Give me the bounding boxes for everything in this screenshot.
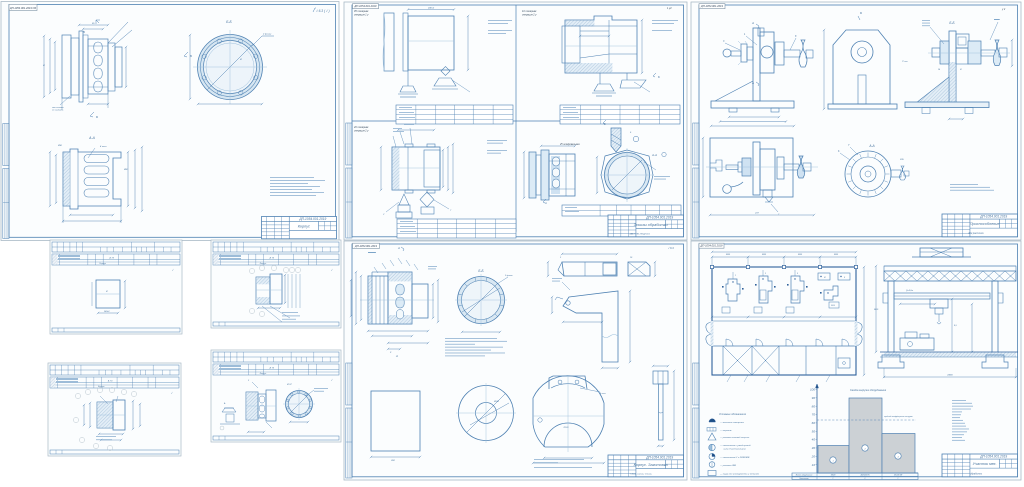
svg-text:Q=3,2т: Q=3,2т (906, 290, 914, 292)
svg-text:24: 24 (937, 68, 940, 71)
svg-text:Ø 97: Ø 97 (286, 384, 293, 386)
svg-text:1: 1 (735, 275, 736, 277)
svg-text:Б: Б (190, 54, 192, 58)
svg-text:2 фаски: 2 фаски (504, 274, 513, 277)
svg-text:05-15: 05-15 (831, 305, 835, 307)
svg-text:Б-Б: Б-Б (226, 20, 232, 24)
svg-text:Количество: Количество (799, 478, 808, 480)
svg-text:ДП-1054.001.2019: ДП-1054.001.2019 (700, 244, 723, 248)
svg-text:Сводка загрузки оборудования: Сводка загрузки оборудования (850, 389, 887, 392)
svg-text:А 73: А 73 (269, 367, 275, 370)
svg-text:10: 10 (812, 463, 816, 467)
svg-text:ДП-1054.001.2019: ДП-1054.001.2019 (700, 4, 723, 8)
svg-text:ДП-1054.001.2019 СБ: ДП-1054.001.2019 СБ (9, 6, 36, 10)
svg-text:100: 100 (810, 388, 815, 392)
svg-text:силы 9 светильников: силы 9 светильников (724, 448, 747, 450)
svg-text:2: 2 (764, 273, 766, 275)
svg-text:Корпус. Заготовка: Корпус. Заготовка (634, 463, 668, 467)
svg-text:А 73: А 73 (107, 380, 113, 383)
svg-text:Ø: Ø (105, 291, 108, 293)
svg-text:240±2: 240±2 (427, 7, 435, 10)
svg-text:не считать: не считать (52, 110, 63, 112)
svg-text:Б-Б: Б-Б (478, 269, 483, 273)
svg-text:1 у2: 1 у2 (667, 7, 672, 10)
svg-text:средний коэффициент загрузки: средний коэффициент загрузки (884, 415, 914, 418)
svg-text:60: 60 (812, 421, 816, 425)
svg-text:25 шлифовальная: 25 шлифовальная (559, 143, 580, 146)
svg-text:— светильник с узкой кривой: — светильник с узкой кривой (719, 444, 751, 447)
svg-text:А: А (751, 21, 754, 25)
svg-text:у 2: у 2 (1001, 8, 1006, 11)
svg-text:80: 80 (812, 404, 816, 408)
svg-text:ДП-1054.001.2019: ДП-1054.001.2019 (645, 455, 673, 459)
svg-text:Корпус: Корпус (100, 263, 107, 265)
svg-text:А-А: А-А (88, 136, 95, 140)
svg-text:операция 2 у: операция 2 у (522, 13, 537, 16)
svg-text:30: 30 (812, 446, 816, 450)
svg-text:— верстак: — верстак (719, 430, 732, 432)
svg-text:Эскизы обработки: Эскизы обработки (634, 223, 669, 227)
svg-text:— розетка силовой энергии: — розетка силовой энергии (719, 436, 750, 439)
svg-text:260: 260 (390, 460, 395, 462)
svg-text:2: 2 (864, 478, 866, 480)
svg-text:А: А (397, 246, 400, 250)
svg-text:Условные обозначения: Условные обозначения (719, 413, 747, 416)
svg-text:2А150/2Г25: 2А150/2Г25 (859, 474, 869, 477)
svg-text:20: 20 (811, 454, 816, 458)
svg-text:для расточки: для расточки (968, 232, 984, 235)
svg-text:— светильник U = 220В/36В: — светильник U = 220В/36В (719, 457, 750, 459)
svg-text:24000: 24000 (946, 374, 953, 377)
svg-text:А-А: А-А (868, 144, 874, 148)
svg-text:237: 237 (754, 213, 759, 215)
svg-text:Корпус: Корпус (260, 263, 267, 265)
svg-text:Корпус: Корпус (260, 373, 267, 375)
svg-text:4 отв: 4 отв (600, 392, 606, 395)
svg-text:Б-Б: Б-Б (949, 21, 954, 25)
svg-text:17 мас: 17 мас (902, 61, 908, 63)
svg-text:операция 1 у: операция 1 у (354, 13, 369, 16)
svg-text:А-А: А-А (651, 153, 657, 157)
svg-text:ДП-1054.001.2019: ДП-1054.001.2019 (979, 215, 1007, 219)
svg-text:обработки: обработки (970, 474, 983, 476)
svg-text:Б: Б (96, 115, 98, 119)
svg-text:3К 225 ВМ: 3К 225 ВМ (894, 475, 903, 477)
svg-text:40: 40 (812, 438, 816, 442)
svg-text:50: 50 (812, 429, 816, 433)
svg-text:ДМ-7.ПВ.ТМ.ДП-19.: ДМ-7.ПВ.ТМ.ДП-19. (629, 234, 651, 236)
svg-text:Приспособление: Приспособление (970, 222, 1000, 226)
svg-text:А 73: А 73 (269, 257, 275, 260)
svg-text:16К20: 16К20 (831, 475, 836, 477)
svg-text:Стац, заточ, Сталь: Стац, заточ, Сталь (630, 474, 652, 476)
svg-text:ДП-1054.001.2019: ДП-1054.001.2019 (298, 217, 326, 221)
svg-text:— розетка 36В: — розетка 36В (719, 465, 737, 467)
svg-text:90: 90 (812, 396, 816, 400)
svg-text:Ø: Ø (239, 59, 242, 61)
svg-text:Б: Б (860, 11, 862, 15)
svg-text:Ø240: Ø240 (493, 400, 500, 403)
svg-text:√ 6.3: √ 6.3 (668, 246, 674, 250)
svg-text:ДП-1054.001.2019: ДП-1054.001.2019 (645, 215, 673, 219)
svg-text:Б: Б (83, 30, 85, 34)
svg-text:операция 2 у: операция 2 у (354, 129, 369, 132)
svg-text:1: 1 (898, 478, 899, 480)
svg-text:1: 1 (832, 460, 833, 462)
svg-text:1: 1 (833, 478, 834, 480)
svg-text:ДП-1054.001.2019: ДП-1054.001.2019 (354, 244, 377, 248)
svg-text:3: 3 (797, 273, 798, 275)
svg-text:√ 6.3 ( √ ): √ 6.3 ( √ ) (316, 9, 330, 13)
svg-text:ДП-1054.001.2019: ДП-1054.001.2019 (979, 455, 1007, 459)
svg-text:240±2: 240±2 (103, 310, 110, 313)
svg-text:А 73: А 73 (108, 257, 114, 260)
svg-text:Участок мех.: Участок мех. (973, 462, 997, 466)
svg-text:Корпус: Корпус (298, 224, 310, 228)
svg-text:Б: Б (658, 75, 660, 79)
svg-text:— местное освещение: — местное освещение (719, 422, 745, 424)
svg-text:А: А (751, 81, 754, 85)
svg-text:— ящик для инструмента и детал: — ящик для инструмента и деталей (719, 473, 760, 476)
svg-text:205: 205 (899, 159, 904, 161)
svg-text:4 паза: 4 паза (100, 145, 107, 148)
svg-text:2 фаски: 2 фаски (262, 33, 272, 36)
svg-text:ДП-1054.001.2019: ДП-1054.001.2019 (354, 4, 377, 8)
svg-text:А: А (395, 354, 398, 358)
svg-text:70: 70 (812, 413, 816, 417)
svg-text:Ø: Ø (42, 65, 45, 67)
